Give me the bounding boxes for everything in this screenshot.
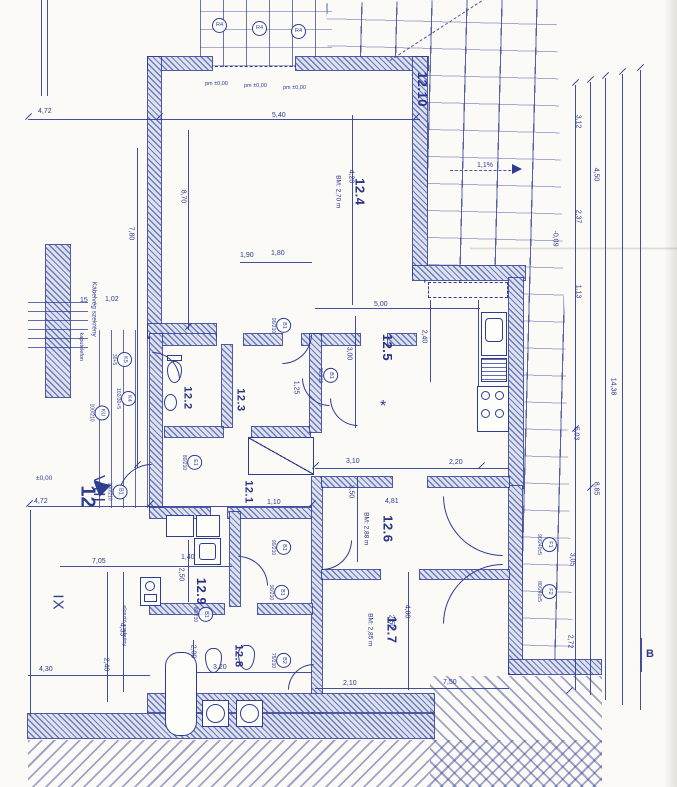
room-number: 12.2 <box>182 386 194 409</box>
dim-line <box>137 148 138 468</box>
column-tag-r4: R4 <box>212 18 227 33</box>
wall <box>258 604 312 614</box>
dim-chain <box>590 82 591 695</box>
window-tag-code: K5 <box>117 352 132 367</box>
entrance-door-tag: B1100/210 <box>107 482 128 500</box>
dim-label: 1,10 <box>267 499 281 506</box>
dim-label: 1,13 <box>574 285 581 299</box>
terrain-hatch <box>430 676 602 787</box>
bathtub <box>165 652 197 736</box>
dim-line <box>352 115 353 305</box>
door-tag-size: 75/210 <box>270 653 275 668</box>
room-height-note: BM: 2,85 m <box>367 613 374 646</box>
dim-label: 3,00 <box>345 347 352 361</box>
dim-label: 3,12 <box>574 115 581 129</box>
wall <box>228 508 312 518</box>
wall <box>322 570 380 579</box>
room-label-12-8: 12.8 <box>230 644 246 667</box>
washbasin <box>164 394 177 411</box>
door-tag-code: B1 <box>323 368 338 383</box>
dim-label: 3,20 <box>213 664 227 671</box>
door-tag-size: 100/210 <box>89 403 94 421</box>
window-tag-code: F2 <box>542 584 557 599</box>
room-number: 12.8 <box>233 644 245 667</box>
washbasin <box>206 704 225 723</box>
window-tag-size: 90/240±5 <box>536 534 541 555</box>
room-label-12-2: 12.2 <box>179 386 195 409</box>
dim-label: 4,72 <box>34 498 48 505</box>
cabinet <box>196 515 220 537</box>
intercom-label: kaputelefon <box>77 333 83 361</box>
kitchen-appliance-grill <box>481 358 507 382</box>
room-label-12-5: 12.5 <box>377 334 396 361</box>
hob-burner <box>481 409 490 418</box>
dim-label: 2,00 <box>189 645 196 659</box>
cable-cabinet-label: Kábelvég szekrény <box>90 282 97 337</box>
room-height-note: BM: 2,88 m <box>363 512 370 545</box>
dim-label: 1,80 <box>271 250 285 257</box>
dim-label: -0,09 <box>551 231 558 247</box>
door-tag-size: 80/210 <box>181 455 186 470</box>
room-label-12-6: 12.6BM: 2,88 m <box>359 512 397 545</box>
door-tag: B190/210 <box>270 318 291 333</box>
balcony-door-arc <box>443 496 503 556</box>
dim-line <box>315 308 480 309</box>
column-level: pm ±0,00 <box>283 86 306 92</box>
wall <box>252 427 310 437</box>
dim-line <box>107 572 108 702</box>
dim-label: 5,03 <box>572 427 579 441</box>
dim-label: 1,25 <box>292 381 299 395</box>
dim-line <box>315 688 509 689</box>
cabinet <box>166 515 194 537</box>
door-arc <box>288 664 314 690</box>
door-arc <box>330 398 358 426</box>
dim-label: 2,20 <box>449 459 463 466</box>
hob-burner <box>495 409 504 418</box>
dim-label: 4,50 <box>592 168 599 182</box>
dim-line <box>28 506 312 507</box>
dim-label: 2,50 <box>387 615 394 629</box>
wall <box>509 660 601 674</box>
window-tag-size: 80/240±5 <box>536 581 541 602</box>
dim-label: 2,37 <box>574 210 581 224</box>
window-tag-code: K4 <box>121 391 136 406</box>
dim-chain <box>622 74 623 705</box>
dim-line <box>60 566 232 567</box>
door-tag: E180/210 <box>181 455 202 470</box>
window-tag: K530+5 <box>111 352 132 367</box>
dim-label: 3,10 <box>346 458 360 465</box>
dim-label: 3,05 <box>568 553 575 567</box>
dim-label: 4,72 <box>38 108 52 115</box>
wall <box>509 486 522 674</box>
door-tag-size: 100/210 <box>107 482 112 500</box>
dim-label: 2,10 <box>343 680 357 687</box>
room-label-12-3: 12.3 <box>232 388 248 411</box>
room-label-12-1: 12.1 <box>240 480 256 503</box>
dim-label: 15 <box>80 297 88 304</box>
door-tag-size: 90/210 <box>268 585 273 600</box>
window-tag-size: 30+5 <box>111 354 116 365</box>
room-label-12-7: 12.7BM: 2,85 m <box>363 613 401 646</box>
door-tag-code: B1 <box>276 318 291 333</box>
dim-label: 7,80 <box>127 227 134 241</box>
slope-arrowhead <box>512 164 522 174</box>
dim-chain <box>575 85 576 690</box>
shower-tray <box>199 543 216 560</box>
dim-label: 14,38 <box>609 378 616 396</box>
dim-line <box>430 300 431 382</box>
door-tag: KU100/210 <box>89 403 110 421</box>
window-tag: F190/240±5 <box>536 534 557 555</box>
scan-edge-shadow <box>664 0 677 787</box>
wall <box>165 427 223 437</box>
door-tag: B190/210 <box>268 585 289 600</box>
dim-line <box>240 262 312 263</box>
room-number: 12.3 <box>235 388 247 411</box>
room-number: 12.10 <box>415 72 430 107</box>
dim-label: 1,02 <box>105 296 119 303</box>
floor-drain-asterisk: * <box>380 398 386 416</box>
dim-label: 2,72 <box>566 635 573 649</box>
room-number: 12.1 <box>243 480 255 503</box>
room-number: 12.9 <box>194 578 209 605</box>
kitchen-sink-basin <box>485 318 503 342</box>
dim-line <box>408 572 409 690</box>
column-level: pm ±0,00 <box>205 82 228 88</box>
dim-line <box>188 540 189 602</box>
door-tag: B275/210 <box>270 653 291 668</box>
room-number: 12.4 <box>352 178 367 205</box>
electrical-cabinet-box <box>144 594 157 602</box>
room-number: 12.5 <box>380 334 395 361</box>
stair-core-label-ix: IX <box>50 594 67 610</box>
slope-arrow-line <box>450 170 516 171</box>
wall <box>160 334 216 345</box>
wall <box>509 278 523 488</box>
door-tag: B190/210 <box>270 540 291 555</box>
dim-line <box>28 675 150 676</box>
door-arc <box>282 334 312 364</box>
door-tag-code: KU <box>95 405 110 420</box>
door-arc <box>322 540 352 570</box>
room-number: 12.6 <box>380 515 395 542</box>
dim-label: 2,40 <box>420 330 427 344</box>
dim-label: 8,70 <box>179 190 186 204</box>
kitchen-upper-counter <box>428 282 508 298</box>
door-tag: B190/210 <box>317 368 338 383</box>
room-height-note: BM: 2,70 m <box>335 175 342 208</box>
door-tag-size: 90/210 <box>317 368 322 383</box>
wall <box>296 57 428 70</box>
door-tag-code: B2 <box>276 653 291 668</box>
door-tag-code: B1 <box>198 607 213 622</box>
door-tag-code: B1 <box>113 484 128 499</box>
wall <box>428 477 509 487</box>
dim-label: 4,81 <box>385 498 399 505</box>
window-tag: K4102/30+5 <box>115 388 136 409</box>
closet <box>248 437 314 475</box>
dim-label: 8,85 <box>592 482 599 496</box>
dim-label: 7,50 <box>443 679 457 686</box>
dim-label: 4,30 <box>39 666 53 673</box>
window-tag: F280/240±5 <box>536 581 557 602</box>
dim-label: 2,40 <box>102 658 109 672</box>
line <box>47 0 48 96</box>
room-label-12-10: 12.10 <box>412 72 431 107</box>
electrical-cabinet-dial <box>145 581 155 591</box>
dim-label: 4,20 <box>347 170 354 184</box>
section-marker-line <box>641 638 642 672</box>
dim-line <box>315 468 509 469</box>
dim-line <box>188 130 189 330</box>
door-tag-size: 90/210 <box>270 540 275 555</box>
dim-label: 3,50 <box>347 485 354 499</box>
wall <box>28 714 434 738</box>
dim-chain <box>640 70 641 710</box>
door-tag-size: 80/210 <box>192 607 197 622</box>
section-marker-b: B <box>646 648 654 660</box>
line <box>41 0 42 96</box>
door-tag-size: 90/210 <box>270 318 275 333</box>
floor-plan-sheet: 12.4BM: 2,70 m 12.5 12.10 12.2 12.3 12.1… <box>0 0 677 787</box>
hob-burner <box>481 391 490 400</box>
room-label-12-9: 12.9 <box>191 578 210 605</box>
washbasin <box>240 704 259 723</box>
dim-label: 5,40 <box>272 112 286 119</box>
line <box>30 510 31 716</box>
terrace-tile-grid <box>326 0 573 668</box>
dim-label: 7,05 <box>92 558 106 565</box>
dim-label: 4,33 <box>118 623 125 637</box>
hob-burner <box>495 391 504 400</box>
window-tag-code: F1 <box>542 537 557 552</box>
door-arc <box>238 556 268 586</box>
wall <box>222 345 232 427</box>
dim-label: 1,90 <box>240 252 254 259</box>
dim-label: 1,40 <box>181 554 195 561</box>
level-mark: ±0,00 <box>36 476 52 483</box>
dim-label: 2,50 <box>177 568 184 582</box>
door-tag-code: B1 <box>274 585 289 600</box>
dim-label: 4,80 <box>403 605 410 619</box>
dim-line <box>28 119 420 120</box>
dim-chain <box>605 78 606 700</box>
door-tag: B180/210 <box>192 607 213 622</box>
column-level: pm ±0,00 <box>244 84 267 90</box>
dim-label: 5,00 <box>374 301 388 308</box>
door-tag-code: E1 <box>187 455 202 470</box>
wall <box>244 334 282 345</box>
slope-label: 1,1% <box>477 162 493 169</box>
column-tag-r4: R4 <box>291 24 306 39</box>
wall <box>148 57 161 338</box>
column-tag-r4: R4 <box>252 21 267 36</box>
window-tag-size: 102/30+5 <box>115 388 120 409</box>
door-tag-code: B1 <box>276 540 291 555</box>
